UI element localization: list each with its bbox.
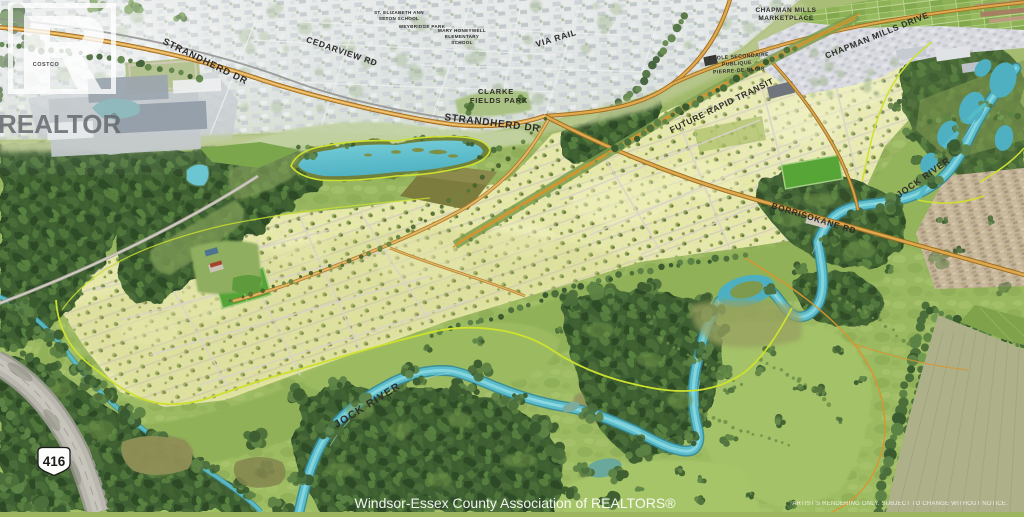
svg-text:FIELDS PARK: FIELDS PARK xyxy=(470,96,528,105)
svg-text:ELEMENTARY: ELEMENTARY xyxy=(445,34,479,39)
svg-text:ST. ELIZABETH ANN: ST. ELIZABETH ANN xyxy=(374,10,424,15)
svg-text:REALTOR: REALTOR xyxy=(0,109,121,139)
svg-text:SETON SCHOOL: SETON SCHOOL xyxy=(379,16,419,21)
svg-text:Windsor-Essex County Associati: Windsor-Essex County Association of REAL… xyxy=(354,495,676,511)
svg-text:®: ® xyxy=(111,112,117,121)
svg-text:ARTIST'S RENDERING ONLY. SUBJE: ARTIST'S RENDERING ONLY. SUBJECT TO CHAN… xyxy=(792,501,1008,507)
svg-text:SCHOOL: SCHOOL xyxy=(451,40,472,45)
svg-text:CLARKE: CLARKE xyxy=(478,87,514,96)
svg-text:416: 416 xyxy=(43,454,66,469)
svg-text:MARKETPLACE: MARKETPLACE xyxy=(758,15,813,22)
svg-text:MARY HONEYWELL: MARY HONEYWELL xyxy=(438,28,486,33)
svg-text:CHAPMAN MILLS: CHAPMAN MILLS xyxy=(755,7,816,14)
svg-text:COSTCO: COSTCO xyxy=(33,62,60,68)
